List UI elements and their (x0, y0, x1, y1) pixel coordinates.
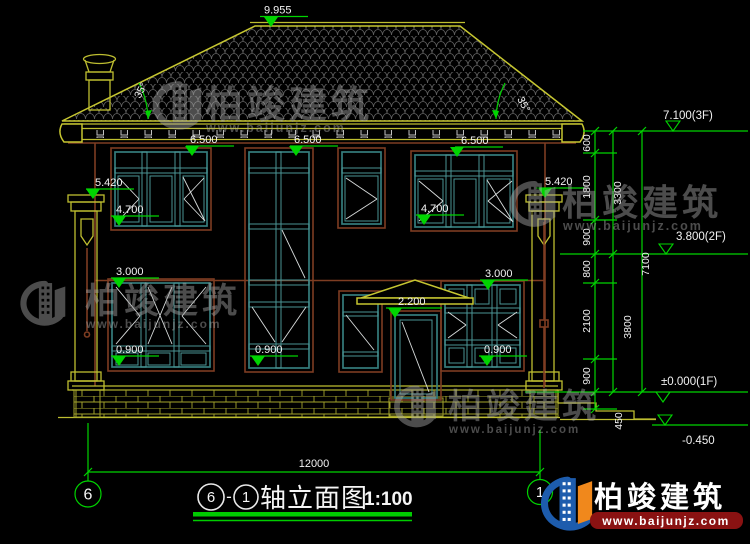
ridge-level-label: 9.955 (264, 5, 292, 17)
tag-6500-1: 6.500 (190, 134, 218, 146)
brand-logo: 柏竣建筑 www.baijunjz.com (544, 478, 743, 529)
tag-6500-3: 6.500 (461, 135, 489, 147)
level-1f: ±0.000(1F) (661, 376, 717, 388)
watermark-site: www.baijunjz.com (448, 424, 580, 436)
chain-800: 800 (581, 260, 593, 278)
drawing-scale: 1:100 (364, 489, 413, 510)
drawing-canvas: 9.955 35° 35° 6.500 6.500 6.500 5.420 5.… (0, 0, 750, 544)
brand-logo-site: www.baijunjz.com (601, 514, 730, 528)
tag-4700-right: 4.700 (421, 203, 449, 215)
watermark-brand: 柏竣建筑 (448, 387, 600, 426)
watermark-site: www.baijunjz.com (85, 317, 222, 331)
watermark-site: www.baijunjz.com (205, 121, 346, 135)
chain-3800: 3800 (622, 315, 634, 339)
chain-450: 450 (613, 412, 625, 430)
axis-number-left: 6 (84, 487, 93, 504)
tag-6500-2: 6.500 (294, 134, 322, 146)
chain-600: 600 (581, 134, 593, 152)
watermark-brand: 柏竣建筑 (85, 281, 241, 321)
brand-logo-name: 柏竣建筑 (594, 480, 726, 514)
title-dash: - (226, 487, 232, 506)
drawing-title: 轴立面图 (260, 483, 368, 513)
level-minus450: -0.450 (682, 435, 715, 447)
overall-width-label: 12000 (299, 458, 330, 470)
tag-4700-left: 4.700 (116, 204, 144, 216)
tag-3000-left: 3.000 (116, 266, 144, 278)
tag-5420-left: 5.420 (95, 177, 123, 189)
title-axis-from: 6 (207, 489, 215, 506)
tag-2200: 2.200 (398, 296, 426, 308)
chain-2100: 2100 (581, 309, 593, 333)
tag-0900-center: 0.900 (255, 344, 283, 356)
cad-elevation-drawing: 9.955 35° 35° 6.500 6.500 6.500 5.420 5.… (0, 0, 750, 544)
level-3f: 7.100(3F) (663, 110, 713, 122)
watermark-site: www.baijunjz.com (562, 219, 703, 233)
chain-7100: 7100 (640, 252, 652, 276)
tag-0900-right: 0.900 (484, 344, 512, 356)
watermark-brand: 柏竣建筑 (562, 182, 722, 223)
chain-900b: 900 (581, 367, 593, 385)
tag-0900-left: 0.900 (116, 344, 144, 356)
title-underline-thick (193, 512, 412, 517)
eave-corbel-left (60, 124, 82, 142)
title-axis-to: 1 (242, 489, 250, 506)
tag-3000-right: 3.000 (485, 268, 513, 280)
title-block: 6 - 1 轴立面图 1:100 (193, 483, 413, 521)
